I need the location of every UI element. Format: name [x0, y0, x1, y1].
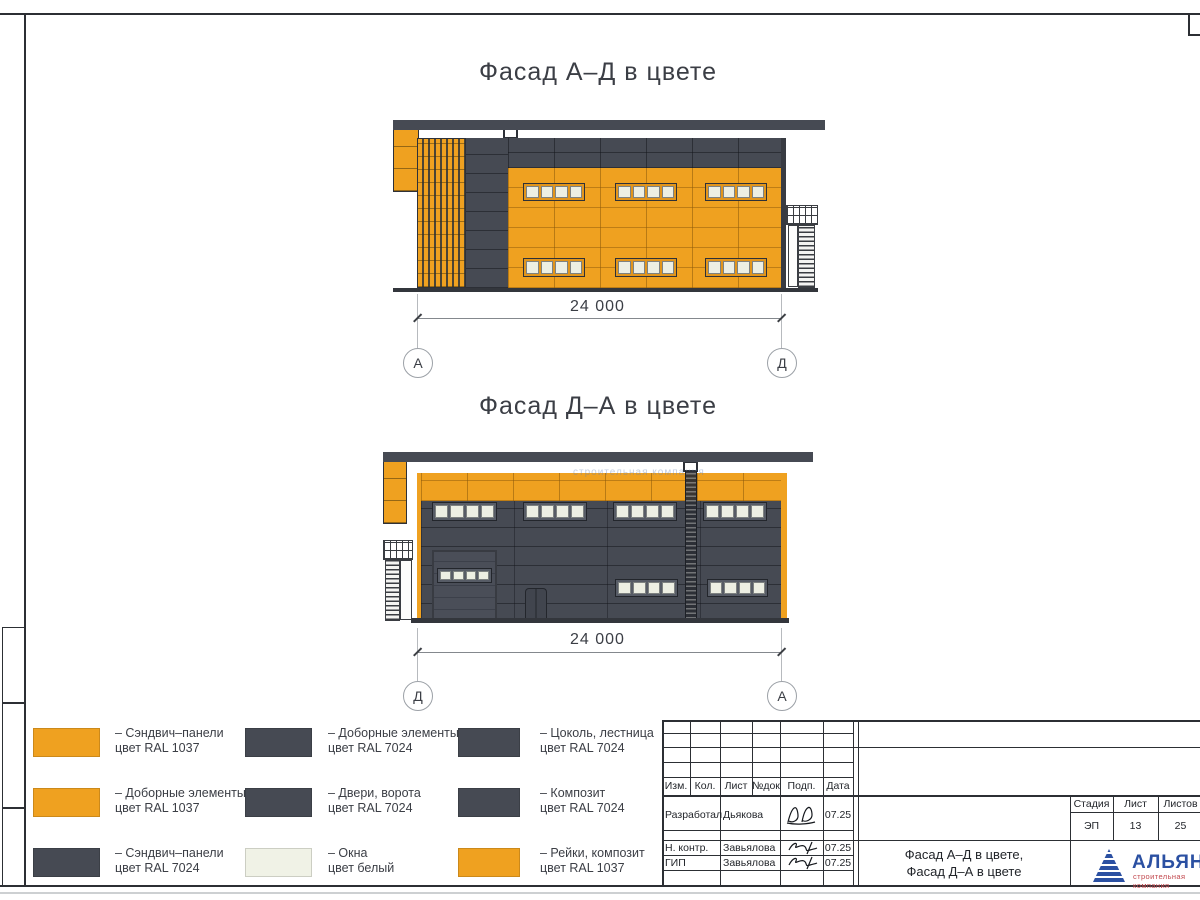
gate-window [437, 568, 492, 583]
dark-wall-strip [466, 138, 508, 288]
legend-swatch [245, 848, 312, 877]
window [523, 502, 587, 521]
corner-sheet-number-box [1188, 13, 1200, 36]
window [523, 183, 585, 201]
tb-header-izm: Изм. [662, 777, 690, 795]
dimension-line [417, 652, 782, 653]
dimension-value: 24 000 [570, 298, 625, 316]
drawing-sheet: Фасад А–Д в цвете 2 [0, 0, 1200, 900]
gate [432, 550, 497, 623]
tb-name: Завьялова [720, 840, 783, 855]
legend-label: – Композитцвет RAL 7024 [540, 786, 625, 816]
stair-side-panel [400, 560, 412, 620]
window [613, 502, 677, 521]
right-edge-strip [781, 473, 787, 623]
window [703, 502, 767, 521]
tb-role: ГИП [662, 855, 723, 870]
page-edge-line [0, 892, 1200, 894]
tb-doc-title: Фасад А–Д в цвете, Фасад Д–А в цвете [858, 840, 1070, 886]
tb-header-kol: Кол. [690, 777, 720, 795]
left-stamp-box-1 [2, 627, 25, 703]
tb-stage-value: ЭП [1070, 812, 1113, 840]
legend-label: – Доборные элементыцвет RAL 1037 [115, 786, 246, 816]
dimension-value: 24 000 [570, 631, 625, 649]
legend-swatch [33, 788, 100, 817]
tb-role: Н. контр. [662, 840, 723, 855]
tb-header-ndok: №док [752, 777, 780, 795]
legend-label: – Окнацвет белый [328, 846, 394, 876]
stair-flight [798, 225, 815, 288]
legend-swatch [245, 788, 312, 817]
signature [784, 801, 822, 832]
facade2-title: Фасад Д–А в цвете [348, 392, 848, 421]
tb-sheets-label: Листов [1158, 795, 1200, 812]
plinth [393, 288, 818, 292]
tb-date: 07.25 [823, 840, 853, 855]
stair-side-panel [788, 225, 798, 287]
facade1-title: Фасад А–Д в цвете [348, 58, 848, 87]
tb-date: 07.25 [823, 802, 853, 828]
tb-header-list: Лист [720, 777, 752, 795]
legend-label: – Сэндвич–панелицвет RAL 1037 [115, 726, 224, 756]
axis-marker: А [767, 681, 797, 711]
window [707, 579, 768, 597]
annex-left [393, 120, 419, 192]
tb-sheet-label: Лист [1113, 795, 1158, 812]
annex-top-band [383, 452, 813, 462]
left-stamp-box-2 [2, 703, 25, 808]
legend-swatch [33, 848, 100, 877]
axis-marker: А [403, 348, 433, 378]
stair-flight [385, 560, 400, 621]
facade-d-a-drawing: строительная компания [383, 452, 813, 625]
plinth [411, 618, 789, 623]
tb-header-data: Дата [823, 777, 853, 795]
roof-ladder [685, 471, 697, 623]
left-stamp-box-3 [2, 808, 25, 886]
tb-sheet-value: 13 [1113, 812, 1158, 840]
signature [786, 855, 820, 875]
axis-marker: Д [767, 348, 797, 378]
tb-name: Завьялова [720, 855, 783, 870]
legend-swatch [245, 728, 312, 757]
annex-right [383, 452, 407, 524]
legend-swatch [458, 788, 520, 817]
tb-name: Дьякова [720, 802, 783, 828]
annex-top-band [393, 120, 825, 130]
tb-role: Разработал [662, 802, 723, 828]
axis-marker: Д [403, 681, 433, 711]
legend-label: – Рейки, композитцвет RAL 1037 [540, 846, 645, 876]
tb-header-podp: Подп. [780, 777, 823, 795]
tb-stage-label: Стадия [1070, 795, 1113, 812]
tb-date: 07.25 [823, 855, 853, 870]
facade-a-d-drawing [393, 120, 825, 293]
legend-label: – Сэндвич–панелицвет RAL 7024 [115, 846, 224, 876]
window [615, 183, 677, 201]
legend-swatch [33, 728, 100, 757]
tb-sheets-value: 25 [1158, 812, 1200, 840]
window [615, 579, 678, 597]
window [523, 258, 585, 277]
logo-subtitle: строительная компания [1133, 872, 1200, 890]
slat-wall-section [417, 138, 466, 288]
logo-name: АЛЬЯНС [1132, 852, 1200, 874]
legend-label: – Доборные элементыцвет RAL 7024 [328, 726, 459, 756]
legend-label: – Цоколь, лестницацвет RAL 7024 [540, 726, 654, 756]
top-band [508, 138, 781, 168]
dimension-line [417, 318, 782, 319]
legend-label: – Двери, воротацвет RAL 7024 [328, 786, 421, 816]
window [705, 258, 767, 277]
window [432, 502, 497, 521]
window [705, 183, 767, 201]
logo-pyramid-icon [1093, 849, 1125, 882]
legend-swatch [458, 848, 520, 877]
frame-top-line [0, 13, 1200, 15]
legend-swatch [458, 728, 520, 757]
stair-railing [786, 205, 818, 225]
stair-railing [383, 540, 413, 560]
window [615, 258, 677, 277]
